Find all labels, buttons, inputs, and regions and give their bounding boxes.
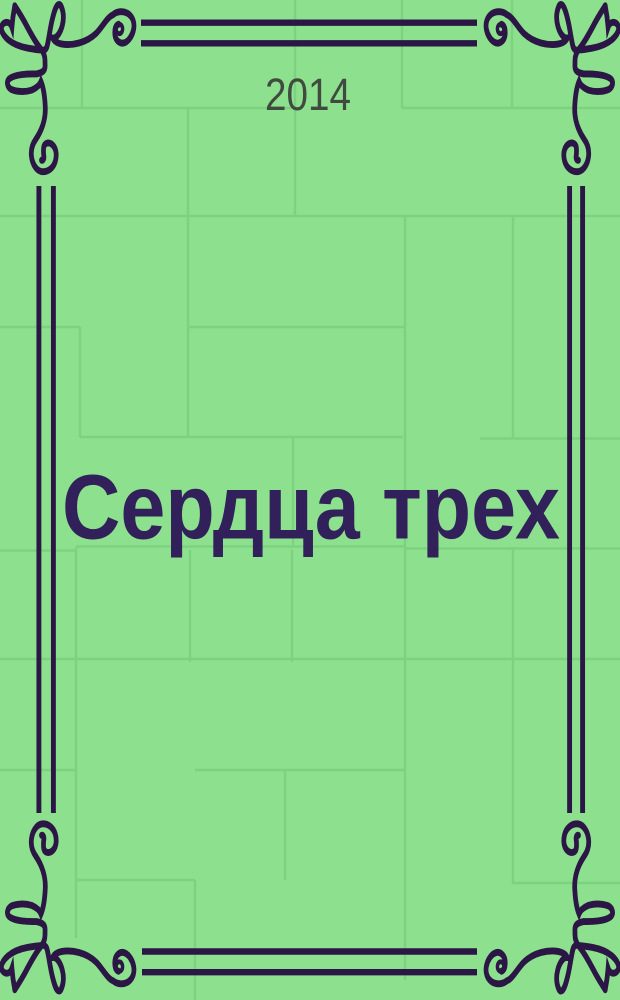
svg-text:2014: 2014 (265, 69, 351, 120)
svg-text:Сердца трех: Сердца трех (62, 457, 560, 559)
